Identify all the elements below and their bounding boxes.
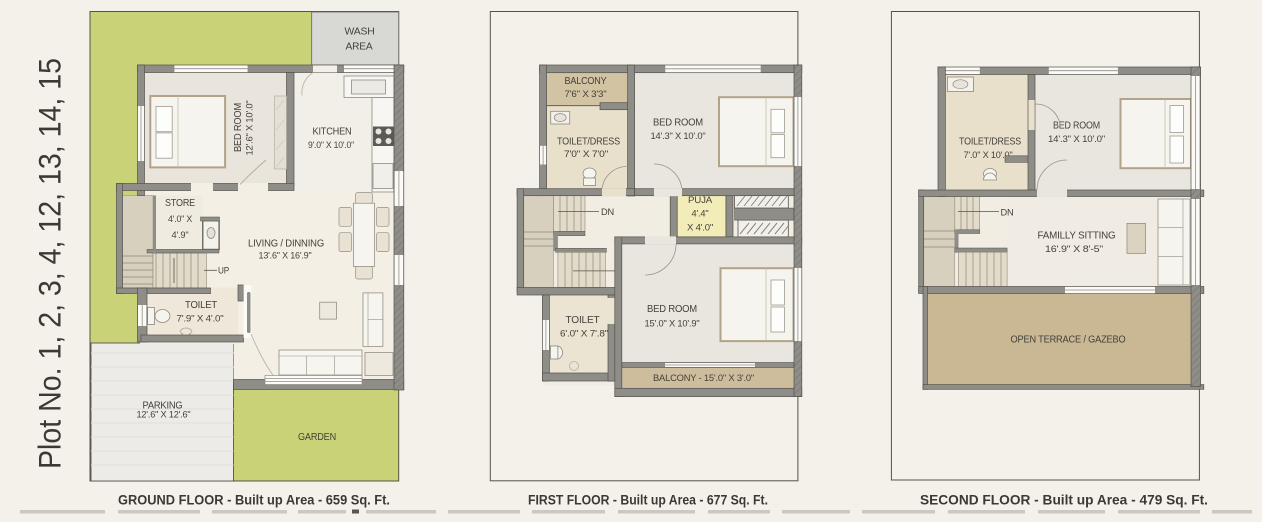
svg-text:16'.9" X 8'-5": 16'.9" X 8'-5" [1045, 244, 1103, 255]
svg-text:BED ROOM: BED ROOM [653, 117, 703, 129]
svg-text:WASH: WASH [345, 26, 375, 38]
svg-text:FIRST FLOOR - Built up Area -: FIRST FLOOR - Built up Area - 677 Sq. Ft… [528, 493, 768, 508]
svg-text:UP: UP [218, 266, 229, 277]
svg-text:STORE: STORE [165, 197, 195, 209]
svg-text:13'.6" X 16'.9": 13'.6" X 16'.9" [259, 251, 312, 262]
svg-text:TOILET/DRESS: TOILET/DRESS [959, 136, 1021, 148]
svg-text:7'0" X 7'0": 7'0" X 7'0" [564, 149, 608, 160]
svg-text:BED ROOM: BED ROOM [232, 103, 244, 152]
svg-text:15'.0" X 10'.9": 15'.0" X 10'.9" [645, 319, 700, 330]
svg-text:TOILET: TOILET [566, 314, 601, 326]
svg-text:12'.6" X 12'.6": 12'.6" X 12'.6" [137, 410, 191, 421]
svg-text:4'.9": 4'.9" [172, 230, 189, 241]
svg-text:Plot No. 1, 2, 3, 4, 12, 13, 1: Plot No. 1, 2, 3, 4, 12, 13, 14, 15 [32, 58, 68, 469]
svg-text:GROUND FLOOR - Built up Area -: GROUND FLOOR - Built up Area - 659 Sq. F… [118, 493, 390, 508]
svg-text:LIVING / DINNING: LIVING / DINNING [248, 238, 324, 250]
svg-text:BALCONY - 15'.0" X 3'.0": BALCONY - 15'.0" X 3'.0" [653, 373, 754, 384]
svg-text:OPEN TERRACE / GAZEBO: OPEN TERRACE / GAZEBO [1011, 334, 1126, 346]
svg-text:KITCHEN: KITCHEN [313, 126, 352, 138]
svg-text:TOILET/DRESS: TOILET/DRESS [557, 136, 620, 148]
svg-text:AREA: AREA [346, 41, 373, 53]
svg-text:6'.0" X 7'.8": 6'.0" X 7'.8" [560, 329, 608, 340]
svg-text:14'.3" X 10'.0": 14'.3" X 10'.0" [1048, 134, 1105, 145]
svg-text:BED ROOM: BED ROOM [647, 303, 697, 315]
svg-text:BALCONY: BALCONY [565, 75, 607, 87]
svg-text:9'.0" X 10'.0": 9'.0" X 10'.0" [308, 140, 354, 151]
svg-text:7'.9" X 4'.0": 7'.9" X 4'.0" [177, 314, 224, 325]
svg-text:X 4'.0": X 4'.0" [687, 223, 713, 234]
svg-text:FAMILLY SITTING: FAMILLY SITTING [1038, 230, 1116, 242]
svg-text:4'.4": 4'.4" [692, 209, 709, 220]
svg-text:PUJA: PUJA [688, 195, 713, 206]
svg-text:12'.6" X 10'.0": 12'.6" X 10'.0" [245, 101, 256, 156]
svg-text:7'6" X 3'3": 7'6" X 3'3" [565, 89, 607, 100]
svg-text:DN: DN [601, 207, 614, 218]
svg-text:SECOND FLOOR - Built up Area -: SECOND FLOOR - Built up Area - 479 Sq. F… [920, 493, 1208, 508]
svg-text:4'.0" X: 4'.0" X [168, 214, 193, 225]
svg-text:TOILET: TOILET [185, 299, 218, 311]
svg-text:14'.3" X 10'.0": 14'.3" X 10'.0" [651, 131, 706, 142]
svg-text:DN: DN [1001, 208, 1014, 219]
svg-text:GARDEN: GARDEN [298, 431, 336, 443]
